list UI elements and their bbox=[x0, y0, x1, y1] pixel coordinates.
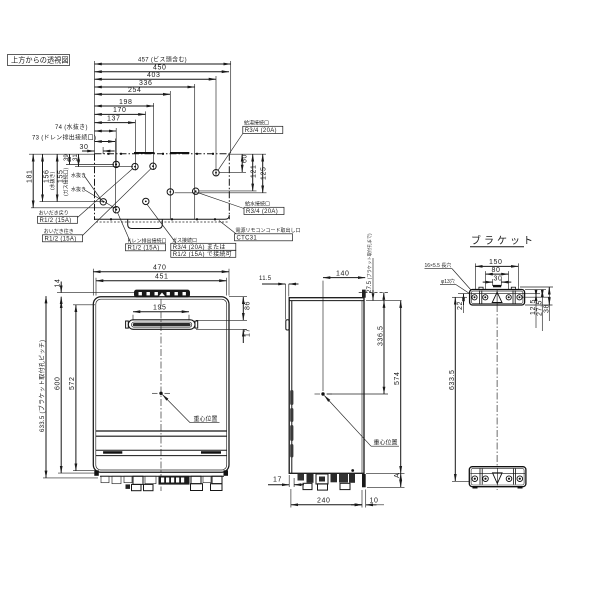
svg-text:R3/4 (20A): R3/4 (20A) bbox=[246, 209, 278, 215]
svg-text:R1/2 (15A): R1/2 (15A) bbox=[40, 218, 72, 224]
svg-text:(水抜き): (水抜き) bbox=[49, 171, 56, 190]
svg-text:11.5: 11.5 bbox=[259, 276, 272, 282]
svg-text:137: 137 bbox=[107, 115, 120, 122]
svg-text:633.5 (ブラケット取付孔ピッチ): 633.5 (ブラケット取付孔ピッチ) bbox=[38, 340, 46, 432]
svg-text:86: 86 bbox=[244, 301, 251, 310]
svg-text:14: 14 bbox=[55, 279, 62, 288]
svg-text:10: 10 bbox=[370, 497, 379, 504]
svg-text:38: 38 bbox=[544, 304, 551, 313]
svg-text:451: 451 bbox=[155, 274, 168, 281]
svg-text:30: 30 bbox=[80, 144, 89, 151]
svg-text:17: 17 bbox=[244, 328, 251, 337]
svg-text:457 (ビス頭含む): 457 (ビス頭含む) bbox=[138, 56, 187, 64]
svg-text:おいだき往き: おいだき往き bbox=[44, 228, 74, 235]
svg-text:574: 574 bbox=[394, 372, 401, 385]
svg-text:39: 39 bbox=[64, 154, 70, 161]
svg-text:R1/2 (15A) で接続可: R1/2 (15A) で接続可 bbox=[173, 250, 232, 258]
svg-text:198: 198 bbox=[119, 99, 132, 106]
svg-text:給湯接続口: 給湯接続口 bbox=[244, 120, 269, 127]
svg-text:31: 31 bbox=[73, 154, 79, 161]
svg-text:450: 450 bbox=[153, 65, 166, 72]
svg-text:600: 600 bbox=[55, 377, 62, 390]
svg-text:403: 403 bbox=[147, 72, 160, 79]
svg-text:195: 195 bbox=[153, 305, 166, 312]
svg-text:150: 150 bbox=[489, 259, 502, 266]
svg-text:R3/4 (20A) または: R3/4 (20A) または bbox=[173, 244, 226, 251]
svg-text:水抜き: 水抜き bbox=[71, 186, 86, 193]
svg-text:16×5.5 長穴: 16×5.5 長穴 bbox=[425, 262, 452, 269]
svg-text:470: 470 bbox=[153, 265, 166, 272]
svg-text:R1/2 (15A): R1/2 (15A) bbox=[45, 237, 77, 243]
svg-text:27.5: 27.5 bbox=[537, 300, 544, 316]
svg-text:上方からの透視図: 上方からの透視図 bbox=[11, 56, 69, 65]
svg-text:240: 240 bbox=[317, 497, 330, 504]
svg-text:(ガス接続口): (ガス接続口) bbox=[62, 167, 69, 196]
svg-text:φ13穴: φ13穴 bbox=[441, 278, 455, 285]
svg-text:30: 30 bbox=[494, 276, 503, 283]
svg-text:重心位置: 重心位置 bbox=[374, 439, 398, 447]
svg-text:80: 80 bbox=[492, 267, 501, 274]
svg-text:水抜き: 水抜き bbox=[71, 172, 86, 179]
svg-text:R1/2 (15A): R1/2 (15A) bbox=[128, 246, 160, 252]
svg-text:633.5: 633.5 bbox=[449, 369, 456, 390]
svg-text:ドレン排出接続口: ドレン排出接続口 bbox=[127, 237, 167, 244]
svg-text:ブラケット: ブラケット bbox=[471, 234, 536, 247]
svg-text:73 (ドレン排出接続口): 73 (ドレン排出接続口) bbox=[32, 134, 96, 142]
svg-text:R3/4 (20A): R3/4 (20A) bbox=[245, 128, 277, 134]
svg-text:重心位置: 重心位置 bbox=[194, 415, 218, 423]
svg-text:140: 140 bbox=[336, 270, 349, 277]
svg-text:74 (水抜き): 74 (水抜き) bbox=[55, 123, 88, 131]
svg-text:181: 181 bbox=[27, 170, 34, 183]
svg-text:17: 17 bbox=[273, 477, 282, 484]
svg-text:170: 170 bbox=[113, 107, 126, 114]
svg-text:22: 22 bbox=[457, 301, 464, 310]
svg-text:336: 336 bbox=[139, 80, 152, 87]
svg-text:60: 60 bbox=[242, 154, 249, 163]
svg-text:572: 572 bbox=[69, 377, 76, 390]
svg-text:254: 254 bbox=[128, 87, 141, 94]
svg-text:27.5 (ブラケット取付孔まで): 27.5 (ブラケット取付孔まで) bbox=[366, 233, 373, 293]
svg-text:給水接続口: 給水接続口 bbox=[245, 201, 270, 208]
svg-text:おいだき戻り: おいだき戻り bbox=[39, 210, 69, 217]
svg-text:電源リモコンコード取出し口: 電源リモコンコード取出し口 bbox=[236, 227, 301, 234]
svg-text:121: 121 bbox=[251, 165, 258, 178]
svg-text:A: A bbox=[394, 473, 401, 478]
svg-text:CTC31: CTC31 bbox=[237, 236, 258, 242]
svg-text:125: 125 bbox=[261, 167, 268, 180]
svg-text:336.5: 336.5 bbox=[378, 325, 385, 346]
